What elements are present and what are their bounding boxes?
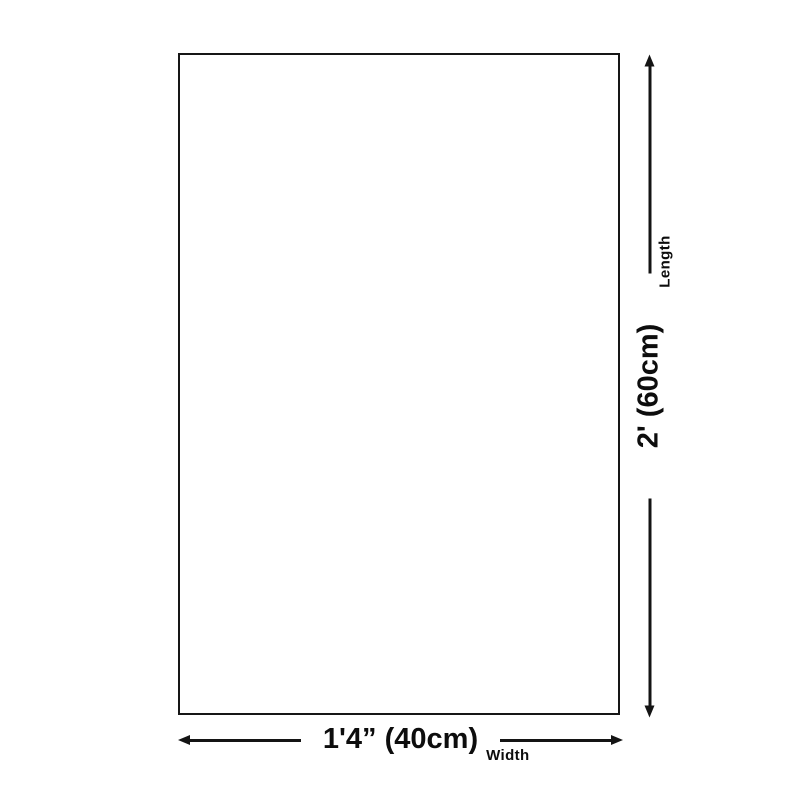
length-arrow-line xyxy=(648,66,651,273)
width-arrow-line xyxy=(190,739,301,742)
length-arrow-upper-segment: Length xyxy=(645,54,655,273)
length-arrow-lower-segment xyxy=(645,498,655,717)
arrow-down-icon xyxy=(645,706,655,718)
product-outline-rectangle xyxy=(178,53,620,715)
dimension-diagram: 2' (60cm) Length 1'4” (40cm) Width xyxy=(0,0,800,800)
width-arrow-right-segment: Width xyxy=(500,735,623,745)
length-value-label: 2' (60cm) xyxy=(633,324,666,449)
arrow-left-icon xyxy=(178,735,190,745)
width-arrow-left-segment xyxy=(178,735,301,745)
width-axis-label: Width xyxy=(486,747,530,764)
arrow-right-icon xyxy=(611,735,623,745)
arrow-up-icon xyxy=(645,54,655,66)
width-value-label: 1'4” (40cm) xyxy=(323,723,478,756)
width-arrow-line xyxy=(500,739,611,742)
length-axis-label: Length xyxy=(657,235,674,287)
length-arrow-line xyxy=(648,498,651,705)
